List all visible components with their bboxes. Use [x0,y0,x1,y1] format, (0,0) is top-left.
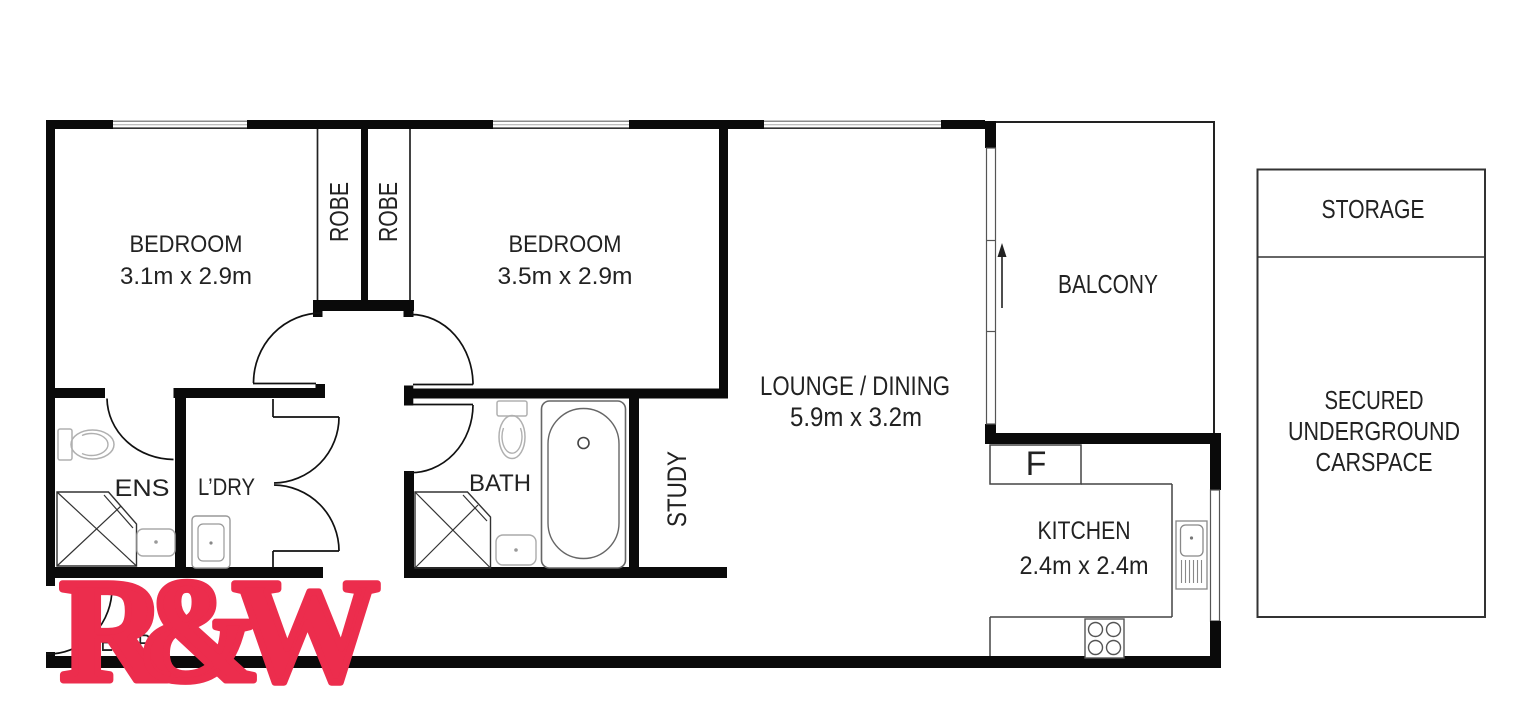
svg-text:2.4m x 2.4m: 2.4m x 2.4m [1020,552,1149,580]
svg-text:L’DRY: L’DRY [198,474,255,501]
svg-text:BEDROOM: BEDROOM [130,231,243,258]
svg-text:STORAGE: STORAGE [1322,194,1425,224]
svg-text:SECURED: SECURED [1325,385,1424,415]
svg-text:F: F [1026,445,1047,483]
svg-text:BALCONY: BALCONY [1058,269,1158,299]
svg-text:ROBE: ROBE [373,182,403,242]
svg-text:LOUNGE / DINING: LOUNGE / DINING [760,371,950,401]
svg-text:3.5m x 2.9m: 3.5m x 2.9m [498,263,633,290]
svg-text:UNDERGROUND: UNDERGROUND [1288,416,1460,446]
svg-text:3.1m x 2.9m: 3.1m x 2.9m [120,263,252,290]
svg-text:KITCHEN: KITCHEN [1038,517,1131,545]
svg-text:ENS: ENS [115,475,170,502]
svg-text:5.9m x 3.2m: 5.9m x 3.2m [790,402,922,432]
svg-text:CARSPACE: CARSPACE [1316,447,1433,477]
svg-text:STUDY: STUDY [662,451,692,527]
svg-text:R&W: R&W [60,549,378,712]
svg-text:BATH: BATH [469,470,531,497]
svg-text:BEDROOM: BEDROOM [509,231,622,258]
svg-text:ROBE: ROBE [324,182,354,242]
